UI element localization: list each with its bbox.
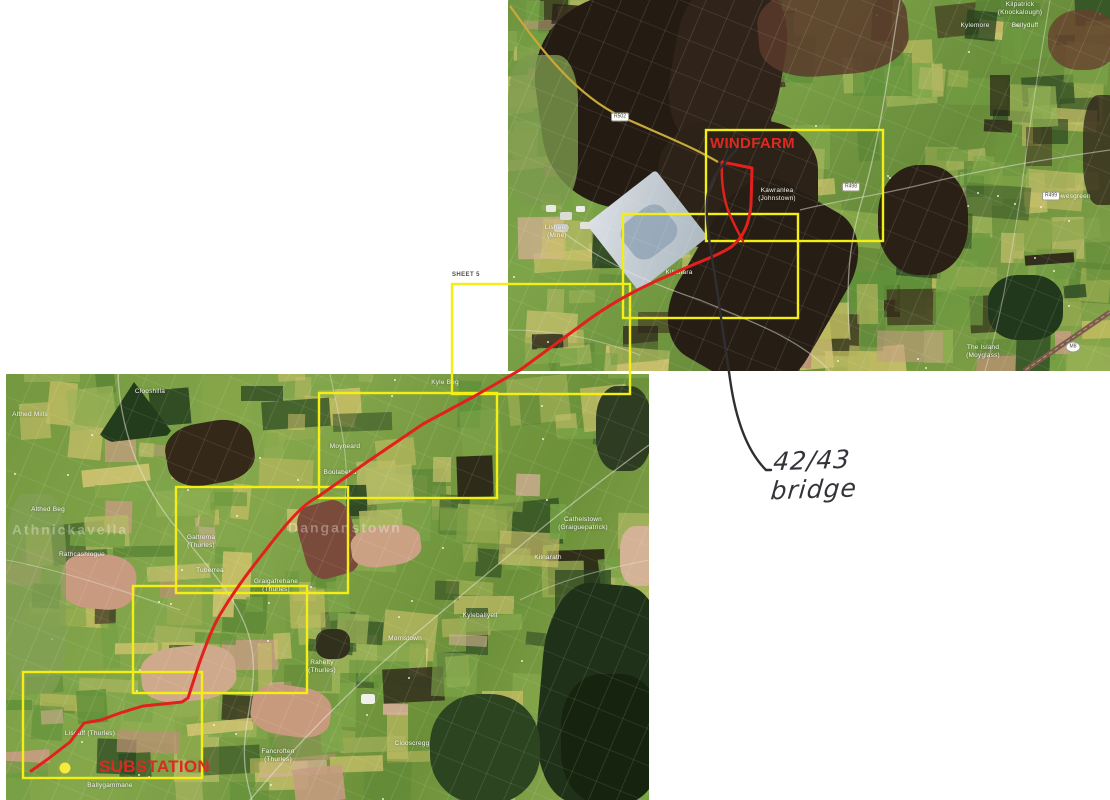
road bbox=[250, 445, 649, 800]
road bbox=[848, 0, 900, 340]
road bbox=[118, 374, 253, 800]
roads-south bbox=[6, 374, 649, 800]
handwritten-note: 42/43 bridge bbox=[770, 441, 965, 506]
road bbox=[560, 230, 830, 371]
sheet-5-label: SHEET 5 bbox=[452, 272, 480, 278]
road bbox=[800, 150, 1110, 210]
road bbox=[6, 560, 180, 610]
road bbox=[330, 374, 346, 500]
aerial-image-north bbox=[508, 0, 1110, 371]
regional-road-yellow bbox=[510, 6, 718, 162]
road bbox=[520, 560, 649, 600]
aerial-image-south bbox=[6, 374, 649, 800]
road bbox=[985, 0, 1050, 371]
roads-north bbox=[508, 0, 1110, 371]
scanned-map-page: Kilpatrick (Knockalough)KylemoreBallyduf… bbox=[0, 0, 1110, 800]
road bbox=[508, 330, 640, 355]
